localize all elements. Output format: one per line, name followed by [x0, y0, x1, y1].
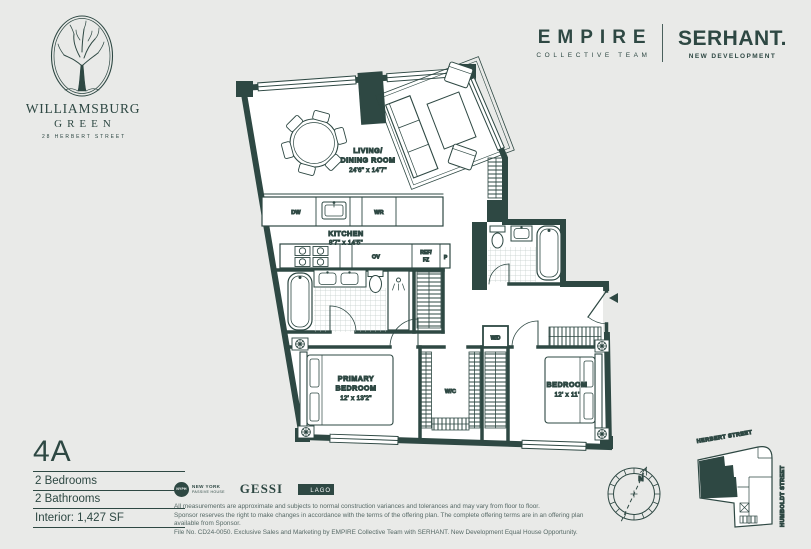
- unit-spec-bedrooms: 2 Bedrooms: [33, 472, 185, 491]
- kitchen-label: KITCHEN: [328, 229, 363, 238]
- certification-logos: NYPH NEW YORK PASSIVE HOUSE GESSI LAGO: [174, 480, 334, 498]
- unit-spec-bathrooms: 2 Bathrooms: [33, 491, 185, 510]
- toilet-icon: [368, 270, 383, 293]
- humboldt-street-label: HUMBOLDT STREET: [780, 465, 786, 527]
- unit-info: 4A 2 Bedrooms 2 Bathrooms Interior: 1,42…: [33, 435, 185, 528]
- walk-in-closet-label: W/C: [445, 389, 456, 395]
- washer-dryer-label: W/D: [491, 336, 501, 342]
- nyph-badge-icon: NYPH: [174, 482, 189, 497]
- primary-bedroom-label-2: BEDROOM: [335, 384, 376, 393]
- disclaimer: All measurements are approximate and sub…: [174, 503, 594, 538]
- shower-icon: [388, 271, 409, 330]
- pantry-closet-living: [488, 158, 504, 198]
- herbert-street-label: HERBERT STREET: [696, 430, 753, 445]
- nyph-line2: PASSIVE HOUSE: [192, 490, 225, 494]
- nyph-logo: NYPH NEW YORK PASSIVE HOUSE: [174, 482, 225, 497]
- lago-logo: LAGO: [298, 484, 334, 495]
- foyer-coat-closet: [549, 327, 601, 346]
- unit-number: 4A: [33, 435, 185, 469]
- nightstand-fan-icon: [302, 428, 311, 437]
- kitchen-counter: [280, 244, 450, 268]
- bathtub-icon: [288, 273, 312, 330]
- second-bathroom: [488, 226, 561, 284]
- living-room-label-1: LIVING/: [353, 146, 382, 155]
- bedroom-dims: 12' x 11': [555, 392, 580, 399]
- wine-fridge-label: WR: [374, 210, 384, 216]
- disclaimer-line-2: Sponsor reserves the right to make chang…: [174, 512, 594, 527]
- primary-bedroom-label-1: PRIMARY: [338, 374, 374, 383]
- key-map: HERBERT STREET HUMBOLDT STREET: [696, 430, 786, 527]
- fridge-label-1: REF/: [420, 250, 432, 256]
- primary-bedroom-dims: 12' x 13'2": [340, 395, 372, 402]
- unit-spec-interior: Interior: 1,427 SF: [33, 509, 185, 528]
- nightstand-fan-icon: [598, 342, 607, 351]
- kitchen-island: [262, 194, 443, 226]
- living-room-dims: 24'6" x 14'7": [349, 167, 387, 174]
- gessi-logo: GESSI: [240, 481, 283, 497]
- kitchen-dims: 8'7" x 14'5": [329, 240, 363, 247]
- compass-rose-icon: N: [597, 457, 671, 531]
- nightstand-fan-icon: [598, 430, 607, 439]
- bathroom-tile-floor: [314, 288, 386, 332]
- nightstand-fan-icon: [296, 340, 305, 349]
- sink2-icon: [511, 226, 532, 241]
- bathroom2-tile-floor: [488, 247, 536, 282]
- living-room-label-2: DINING ROOM: [340, 156, 395, 165]
- bathtub2-icon: [537, 226, 561, 280]
- nyph-line1: NEW YORK: [192, 484, 225, 489]
- disclaimer-line-1: All measurements are approximate and sub…: [174, 503, 594, 511]
- double-vanity-icon: [314, 270, 366, 287]
- disclaimer-line-3: File No. CD24-0050. Exclusive Sales and …: [174, 529, 594, 537]
- dishwasher-label: DW: [291, 210, 301, 216]
- primary-bathroom: [288, 270, 409, 332]
- laundry-closet-shelving: [485, 352, 506, 428]
- fridge-label-2: FZ: [423, 258, 429, 264]
- oven-label: OV: [372, 255, 380, 261]
- compass-north-label: N: [638, 474, 643, 483]
- linen-closet-bath: [417, 272, 441, 328]
- lago-label: LAGO: [310, 488, 331, 494]
- bedroom-label: BEDROOM: [546, 380, 587, 389]
